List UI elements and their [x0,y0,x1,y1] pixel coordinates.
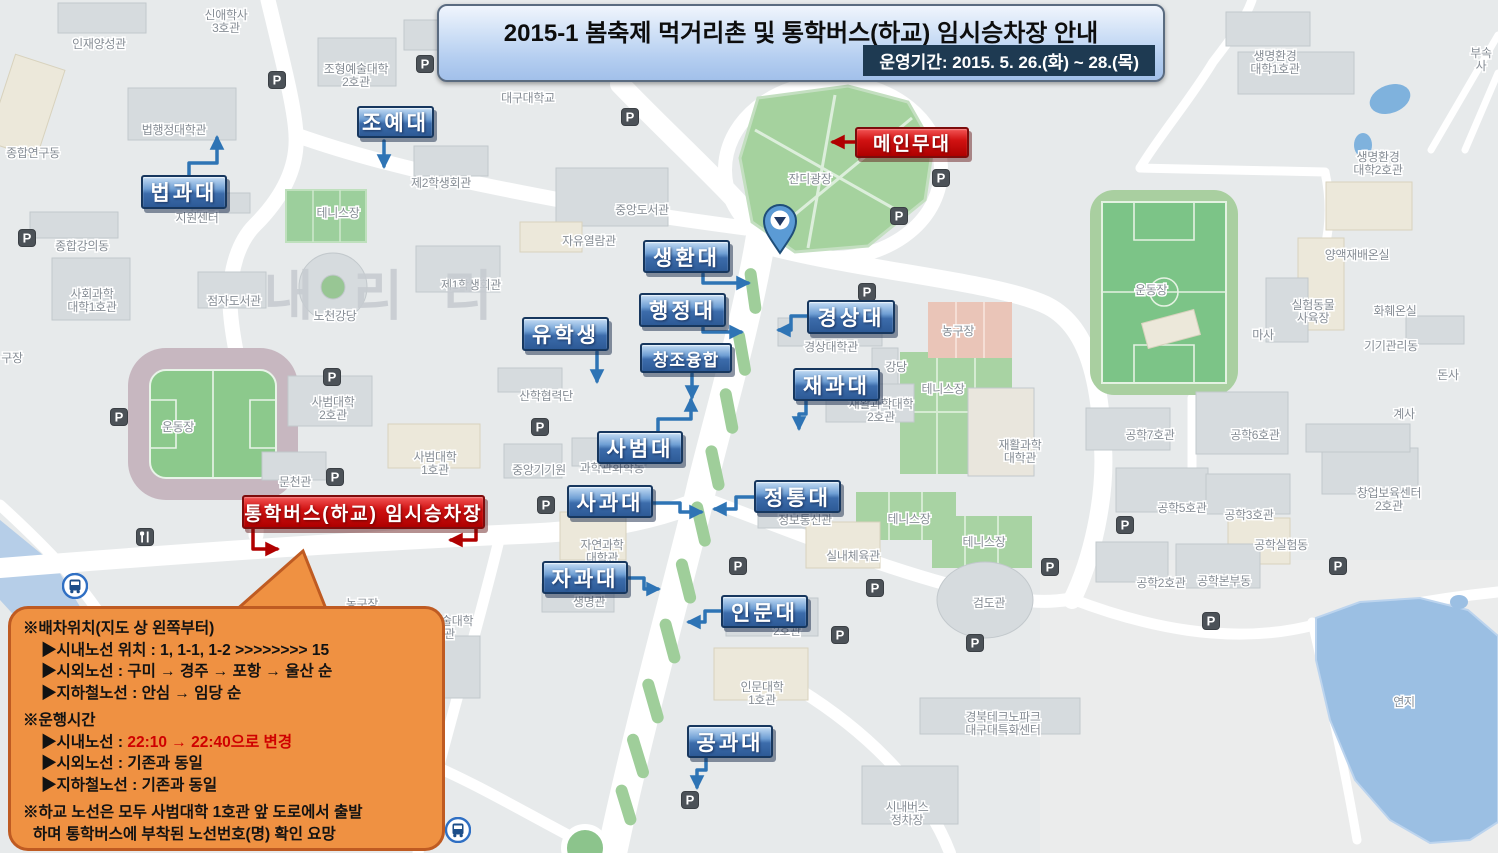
map-place-label: 경상대학관 [804,340,858,354]
bubble-line: ▶시내노선 : 22:10 → 22:40으로 변경 [41,732,434,754]
callout-international-students: 유학생 [522,317,609,351]
map-place-label: 시내버스정차장 [886,800,929,827]
bubble-line: ※하교 노선은 모두 사범대학 1호관 앞 도로에서 출발 [23,802,434,824]
map-place-label: 제2학생회관 [411,176,471,190]
bubble-line: ▶시외노선 : 기존과 동일 [41,753,434,775]
map-place-label: 법행정대학관 [142,122,207,137]
map-place-label: 공학6호관 [1230,428,1280,442]
parking-icon [730,558,747,575]
callout-sabeomdae: 사범대 [597,431,683,464]
map-place-label: 검도관 [973,596,1005,610]
parking-icon [933,170,950,187]
callout-sagwadae: 사과대 [567,485,653,518]
bubble-line: ▶지하철노선 : 안심 → 임당 순 [41,683,434,705]
map-place-label: 마사 [1252,328,1274,342]
map-place-label: 대구대학교 [501,91,555,105]
map-place-label: 생명관 [573,595,605,609]
map-place-label: 재활과학대학관 [999,438,1042,465]
map-place-label: 농구장 [942,324,974,338]
parking-icon [327,469,344,486]
map-place-label: 공학7호관 [1125,428,1175,442]
restaurant-icon [137,529,154,546]
map-place-label: 정보통신관 [778,513,832,527]
map-place-label: 테니스장 [963,535,1006,549]
map-place-label: 운동장 [1135,283,1167,297]
callout-haengjeongdae: 행정대 [639,293,726,327]
parking-icon [967,635,984,652]
title-banner: 2015-1 봄축제 먹거리촌 및 통학버스(하교) 임시승차장 안내 운영기간… [437,4,1165,82]
map-place-label: 테니스장 [922,382,965,396]
bubble-line: ▶지하철노선 : 기존과 동일 [41,775,434,797]
map-place-label: 테니스장 [888,512,931,526]
callout-beopgwadae: 법과대 [141,175,227,209]
map-place-label: 중앙기기원 [512,463,566,477]
map-place-label: 테니스장 [317,206,360,220]
map-place-label: 공학본부동 [1197,574,1251,588]
map-place-label: 공학실험동 [1254,538,1308,552]
map-place-label: 경북테크노파크대구대특화센터 [965,710,1040,737]
info-bubble: ※배차위치(지도 상 왼쪽부터)▶시내노선 위치 : 1, 1-1, 1-2 >… [8,606,445,851]
parking-icon [682,792,699,809]
callout-inmundae: 인문대 [721,595,808,628]
parking-icon [867,580,884,597]
callout-gyeongsangdae: 경상대 [807,300,895,334]
parking-icon [111,409,128,426]
map-place-label: 공학2호관 [1136,576,1186,590]
map-place-label: 종합강의동 [55,239,109,253]
poster-title: 2015-1 봄축제 먹거리촌 및 통학버스(하교) 임시승차장 안내 [439,13,1163,48]
bubble-line: ※운행시간 [23,710,434,732]
parking-icon [269,72,286,89]
map-place-label: 공학5호관 [1157,501,1207,515]
callout-main-stage: 메인무대 [855,127,969,158]
map-place-label: 종합연구동 [6,146,60,160]
map-place-label: 중앙도서관 [615,203,669,217]
parking-icon [859,284,876,301]
map-place-label: 문천관 [279,474,311,489]
bus-stop-icon [63,574,87,598]
map-place-label: 돈사 [1437,368,1459,382]
map-place-label: 실내체육관 [826,549,880,563]
parking-icon [324,369,341,386]
parking-icon [622,109,639,126]
parking-icon [532,419,549,436]
bubble-line: ▶시내노선 위치 : 1, 1-1, 1-2 >>>>>>>> 15 [41,640,434,662]
parking-icon [1117,517,1134,534]
map-place-label: 강당 [885,360,907,374]
parking-icon [891,208,908,225]
parking-icon [1203,613,1220,630]
callout-saenghwandae: 생환대 [643,240,730,273]
bubble-line: ▶시외노선 : 구미 → 경주 → 포항 → 울산 순 [41,661,434,683]
callout-changjo-yunghap: 창조융합 [640,343,732,373]
map-place-label: 구장 [1,351,23,365]
bubble-line: ※배차위치(지도 상 왼쪽부터) [23,618,434,640]
map-place-label: 지원센터 [176,211,219,225]
map-place-label: 양액재배온실 [1325,248,1389,262]
map-place-label: 사회과학대학1호관 [67,287,117,314]
callout-jaegwadae: 재과대 [793,368,880,401]
map-place-label: 계사 [1393,407,1415,421]
callout-shuttle-bus-stop: 통학버스(하교) 임시승차장 [242,495,485,529]
map-place-label: 공학3호관 [1224,508,1274,522]
parking-icon [1042,559,1059,576]
map-place-label: 산학협력단 [519,389,573,403]
map-place-label: 연지 [1393,695,1414,709]
map-place-label: 실험동물사육장 [1292,298,1335,325]
bubble-line: 하며 통학버스에 부착된 노선번호(명) 확인 요망 [33,824,434,846]
parking-icon [538,497,555,514]
map-place-label: 생명환경대학2호관 [1353,150,1403,177]
map-place-label: 인재양성관 [72,37,126,51]
map-place-label: 운동장 [162,420,194,434]
map-place-label: 생명환경대학1호관 [1250,49,1300,76]
campus-map-poster: P [0,0,1498,853]
parking-icon [1330,558,1347,575]
map-place-label: 자유열람관 [562,234,616,248]
parking-icon [832,627,849,644]
map-place-label: 점자도서관 [207,294,261,308]
area-watermark: 내리리 [263,266,532,326]
map-place-label: 화훼온실 [1374,304,1417,318]
map-place-label: 기기관리동 [1364,339,1418,353]
parking-icon [417,56,434,73]
callout-gonggwadae: 공과대 [687,725,773,758]
map-place-label: 잔디광장 [789,172,832,186]
callout-jeongtongdae: 정통대 [754,480,841,513]
operation-period: 운영기간: 2015. 5. 26.(화) ~ 28.(목) [863,45,1155,76]
callout-jagwadae: 자과대 [542,561,628,594]
bus-stop-icon [446,818,470,842]
parking-icon [19,230,36,247]
callout-joyedae: 조예대 [357,106,434,138]
